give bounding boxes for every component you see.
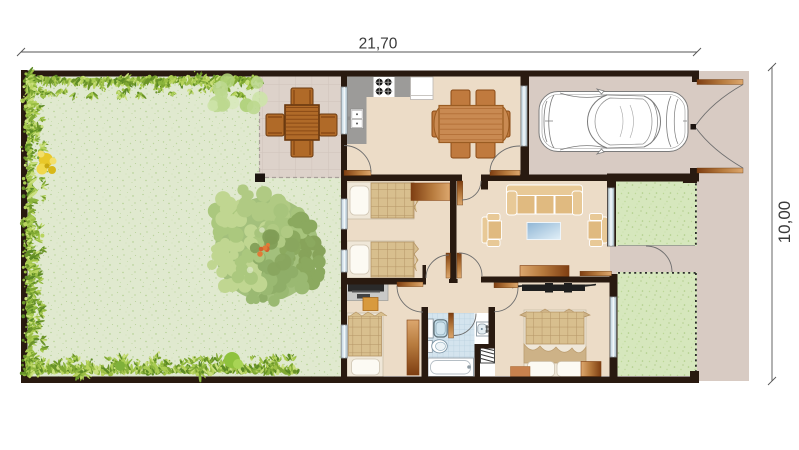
svg-text:21,70: 21,70 xyxy=(359,36,398,53)
svg-text:10,00: 10,00 xyxy=(775,201,794,244)
